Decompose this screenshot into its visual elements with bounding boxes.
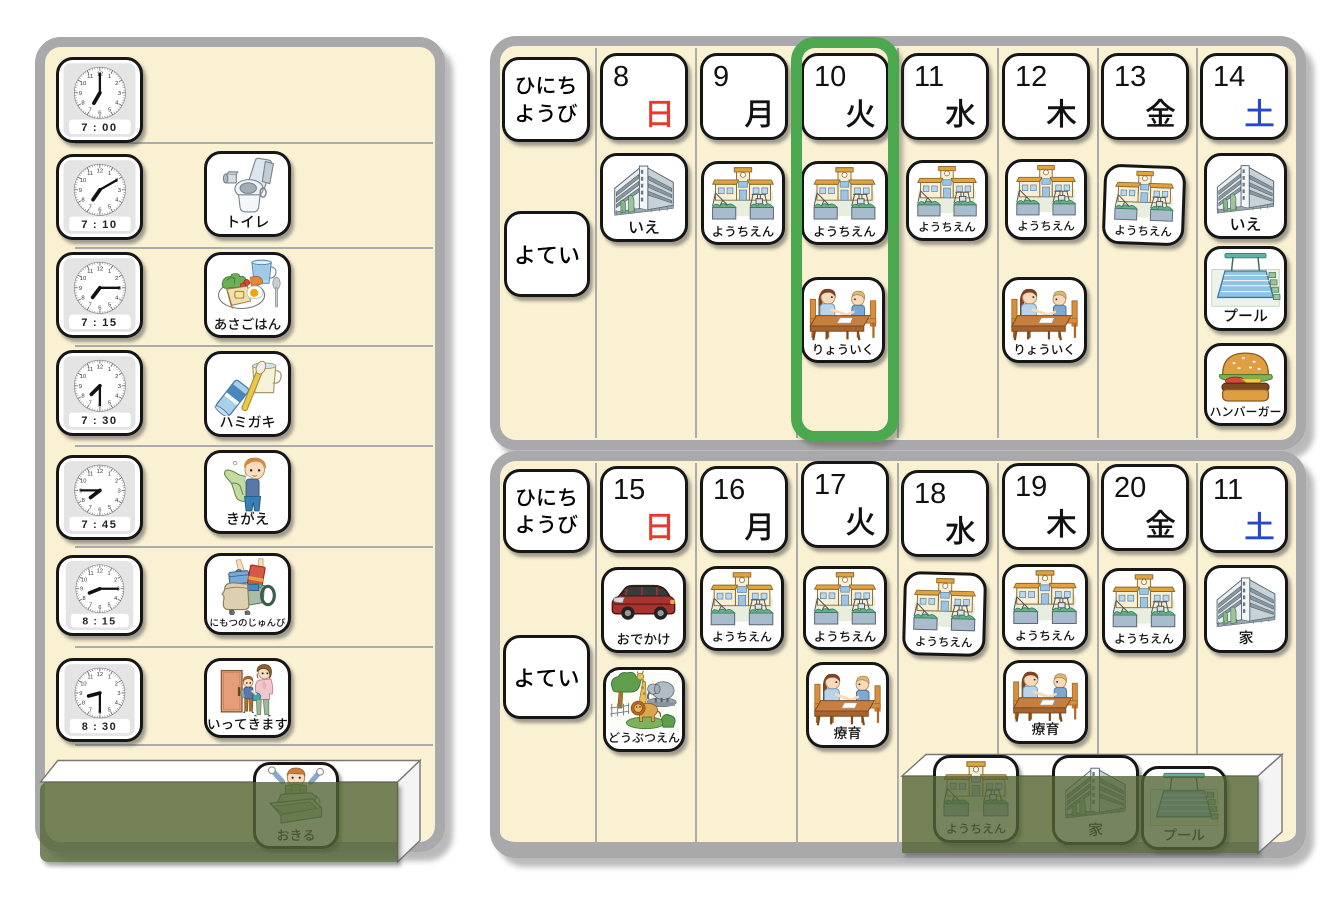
svg-text:9: 9	[79, 384, 82, 390]
svg-text:10: 10	[80, 276, 87, 282]
svg-text:12: 12	[97, 266, 104, 272]
svg-text:7: 7	[89, 505, 92, 511]
svg-text:8: 8	[83, 596, 86, 602]
svg-text:7: 7	[89, 707, 92, 713]
svg-text:10: 10	[80, 479, 87, 485]
svg-text:11: 11	[88, 571, 94, 577]
svg-text:11: 11	[87, 171, 93, 177]
svg-text:12: 12	[97, 672, 103, 678]
svg-text:8: 8	[82, 498, 85, 504]
svg-text:1: 1	[108, 674, 111, 680]
svg-text:10: 10	[81, 577, 87, 583]
svg-text:12: 12	[97, 168, 104, 174]
svg-text:6: 6	[98, 605, 101, 611]
svg-text:12: 12	[97, 364, 104, 370]
svg-text:1: 1	[108, 171, 111, 177]
svg-text:10: 10	[80, 178, 87, 184]
svg-text:11: 11	[87, 472, 93, 478]
svg-text:1: 1	[108, 472, 111, 478]
svg-text:9: 9	[80, 587, 83, 593]
svg-text:1: 1	[108, 367, 111, 373]
svg-text:7 : 45: 7 : 45	[81, 519, 117, 531]
svg-text:1: 1	[107, 571, 110, 577]
svg-text:7 : 30: 7 : 30	[81, 415, 117, 427]
svg-text:7: 7	[89, 602, 92, 608]
svg-text:7 : 15: 7 : 15	[81, 317, 117, 329]
svg-text:2: 2	[115, 479, 118, 485]
svg-text:7 : 00: 7 : 00	[81, 122, 117, 134]
svg-text:7: 7	[88, 205, 91, 211]
svg-text:11: 11	[87, 269, 93, 275]
svg-text:1: 1	[108, 74, 111, 80]
svg-text:2: 2	[115, 374, 118, 380]
svg-text:7 : 10: 7 : 10	[81, 219, 117, 231]
svg-text:12: 12	[97, 469, 103, 475]
svg-text:11: 11	[87, 367, 93, 373]
svg-text:8 : 15: 8 : 15	[82, 615, 116, 627]
svg-text:1: 1	[108, 269, 111, 275]
svg-text:2: 2	[115, 276, 118, 282]
svg-text:10: 10	[80, 81, 87, 87]
svg-text:9: 9	[79, 286, 82, 292]
svg-text:10: 10	[80, 681, 86, 687]
svg-text:2: 2	[115, 681, 118, 687]
svg-text:5: 5	[108, 505, 111, 511]
svg-text:12: 12	[97, 568, 103, 574]
svg-text:7: 7	[88, 401, 91, 407]
svg-text:8: 8	[82, 700, 85, 706]
svg-text:5: 5	[107, 602, 110, 608]
svg-text:4: 4	[114, 596, 117, 602]
svg-text:2: 2	[115, 81, 118, 87]
svg-text:5: 5	[108, 707, 111, 713]
svg-text:2: 2	[114, 577, 117, 583]
svg-text:9: 9	[79, 91, 82, 97]
svg-text:11: 11	[87, 674, 93, 680]
svg-text:6: 6	[98, 508, 101, 514]
svg-text:9: 9	[79, 691, 82, 697]
svg-text:3: 3	[117, 691, 120, 697]
svg-text:7: 7	[88, 303, 91, 309]
svg-text:8 : 30: 8 : 30	[82, 721, 118, 733]
svg-text:11: 11	[87, 74, 93, 80]
svg-text:7: 7	[88, 108, 91, 114]
svg-text:10: 10	[80, 374, 87, 380]
svg-text:3: 3	[118, 488, 121, 494]
svg-text:9: 9	[79, 188, 82, 194]
